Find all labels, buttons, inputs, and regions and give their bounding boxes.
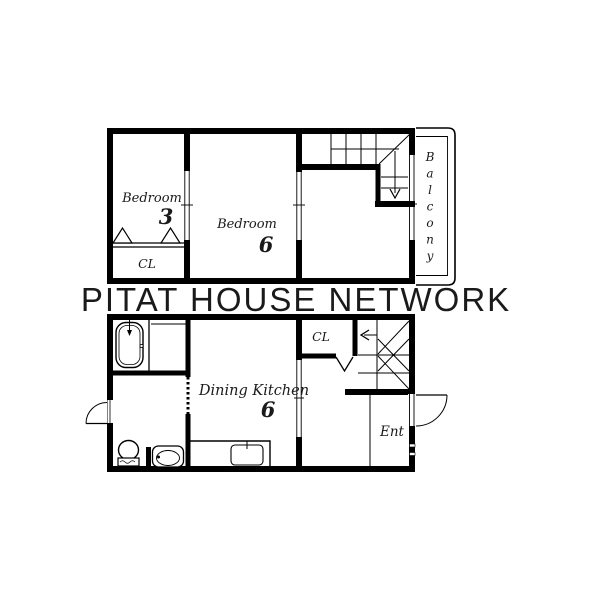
lower-floor-plan: Dining Kitchen 6 CL Ent: [86, 317, 447, 469]
entrance-label: Ent: [379, 424, 405, 440]
floor-plan-drawing: PITAT HOUSE NETWORK: [0, 0, 600, 600]
bedroom6-label: Bedroom: [216, 217, 277, 232]
bathtub-handle: [140, 344, 143, 347]
door-swing-arc: [416, 395, 447, 426]
dining-kitchen-size: 6: [261, 397, 276, 422]
upper-floor-plan: Bedroom 3 CL Bedroom 6 Balcony: [110, 128, 455, 285]
upper-closet-label: CL: [138, 256, 156, 271]
bathtub-icon: [116, 320, 143, 368]
watermark-text: PITAT HOUSE NETWORK: [81, 281, 511, 318]
toilet-icon: [118, 441, 139, 467]
door-swing-arc: [86, 403, 107, 424]
bedroom6-size: 6: [259, 232, 274, 257]
balcony-window: [407, 155, 417, 240]
bedroom3-size: 3: [159, 204, 174, 229]
lower-closet-label: CL: [312, 329, 330, 344]
toilet-partition-wall: [146, 447, 151, 467]
entrance-door: [408, 394, 447, 426]
basin-faucet-dot: [157, 456, 160, 459]
dining-kitchen-label: Dining Kitchen: [198, 383, 309, 399]
balcony: [416, 128, 455, 285]
floor-plan-page: PITAT HOUSE NETWORK: [0, 0, 600, 600]
balcony-label: Balcony: [425, 150, 435, 263]
side-door: [86, 400, 113, 424]
washbasin-icon: [153, 446, 184, 467]
